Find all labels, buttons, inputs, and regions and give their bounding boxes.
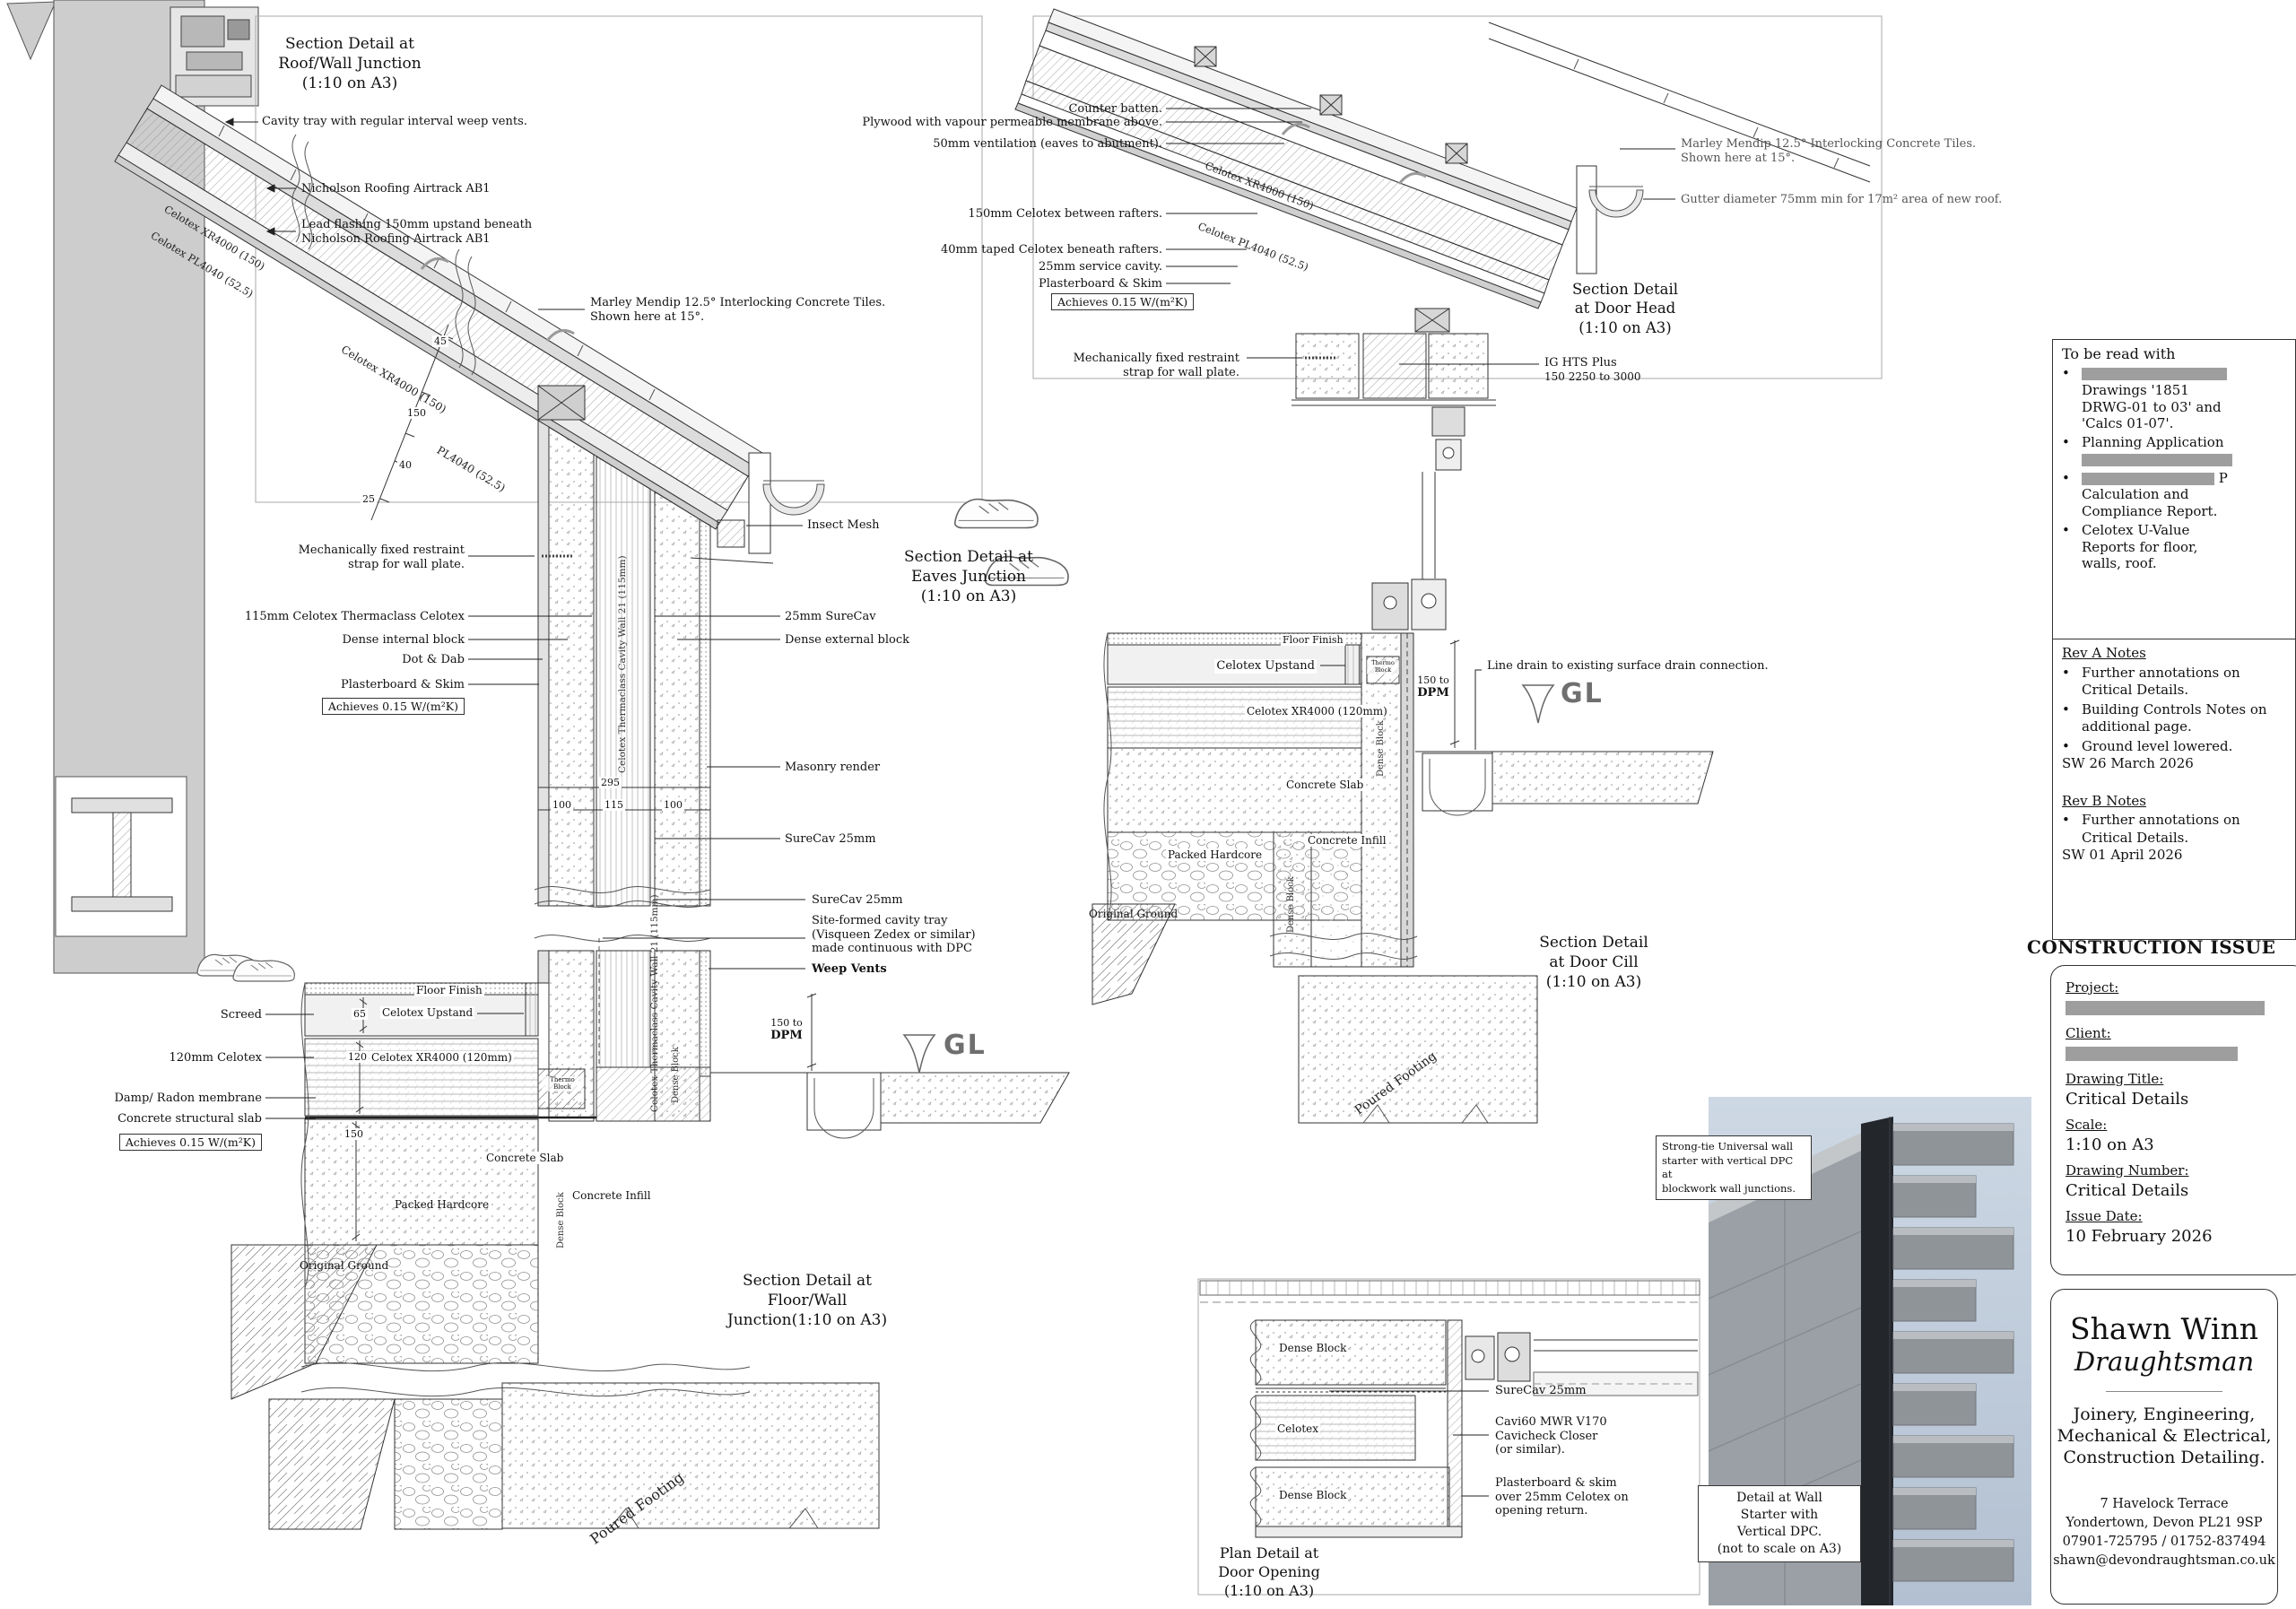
label-line: Shown here at 15°. [590, 310, 885, 325]
label-line: DPM [764, 1029, 809, 1043]
label-line: Thermo [542, 1076, 583, 1083]
rev-text: Further annotations on Critical Details. [2082, 665, 2286, 700]
brand-address: 7 Havelock Terrace Yondertown, Devon PL2… [2051, 1495, 2277, 1570]
title-floor-wall-junction: Section Detail at Floor/Wall Junction(1:… [717, 1271, 897, 1330]
title-line: Section Detail at [717, 1271, 897, 1291]
dim-25: 25 [361, 493, 377, 505]
label-line: P [2219, 470, 2228, 486]
label-dense-block-plan-a: Dense Block [1277, 1342, 1348, 1354]
client-label: Client: [2066, 1025, 2292, 1041]
title-line: (1:10 on A3) [874, 587, 1063, 606]
label-concrete-infill-cill: Concrete Infill [1306, 834, 1388, 847]
rev-b-sign: SW 01 April 2026 [2062, 847, 2286, 865]
title-eaves-junction: Section Detail at Eaves Junction (1:10 o… [874, 547, 1063, 606]
label-line: (Visqueen Zedex or similar) [812, 928, 976, 943]
label-thermo-block-cill: Thermo Block [1367, 660, 1399, 674]
bullet-icon: • [2062, 365, 2074, 432]
dim-150-slab: 150 [343, 1128, 365, 1140]
title-line: Section Detail [1528, 933, 1659, 952]
label-line: Compliance Report. [2082, 503, 2217, 519]
label-concrete-structural-slab: Concrete structural slab [117, 1112, 262, 1126]
label-line: DPM [1413, 686, 1453, 700]
label-celotex-upstand: Celotex Upstand [380, 1006, 474, 1019]
brand-role: Draughtsman [2051, 1346, 2277, 1377]
label-floor-finish-cill: Floor Finish [1281, 634, 1345, 646]
label-line: Cavi60 MWR V170 [1495, 1415, 1607, 1430]
gl-marker-icon [1523, 685, 1553, 723]
label-weep-vents: Weep Vents [812, 962, 887, 977]
caption-line: Starter with [1704, 1507, 1855, 1524]
title-line: Junction(1:10 on A3) [717, 1310, 897, 1330]
label-line: Construction Detailing. [2051, 1448, 2277, 1469]
bullet-icon: • [2062, 738, 2074, 756]
label-concrete-infill: Concrete Infill [570, 1189, 653, 1202]
label-line: Yondertown, Devon PL21 9SP [2051, 1514, 2277, 1533]
label-lead-flashing: Lead flashing 150mm upstand beneath Nich… [301, 218, 532, 246]
label-surecav-floor: SureCav 25mm [812, 893, 903, 908]
label-restraint-strap: Mechanically fixed restraint strap for w… [299, 544, 465, 571]
label-cavity-wall-vertical: Celotex Thermaclass Cavity Wall 21 (115m… [617, 555, 628, 773]
label-celotex-xr4000-120: Celotex XR4000 (120mm) [370, 1051, 514, 1064]
label-thermo-block: Thermo Block [542, 1076, 583, 1092]
drawing-number-label: Drawing Number: [2066, 1162, 2292, 1178]
title-block-info: Project: Client: Drawing Title: Critical… [2050, 965, 2296, 1275]
construction-issue-heading: CONSTRUCTION ISSUE [2027, 936, 2296, 958]
title-block-brand: Shawn Winn Draughtsman Joinery, Engineer… [2050, 1289, 2278, 1605]
revision-notes-box: Rev A Notes •Further annotations on Crit… [2052, 639, 2296, 940]
label-plasterboard-skim-head: Plasterboard & Skim [1039, 277, 1162, 291]
label-line: blockwork wall junctions. [1662, 1182, 1805, 1196]
u-value-box-floor: Achieves 0.15 W/(m²K) [119, 1134, 262, 1151]
dim-150: 150 [405, 407, 428, 419]
divider [2106, 1391, 2222, 1392]
redacted-text [2066, 1047, 2238, 1061]
gl-marker-icon [904, 1035, 935, 1073]
title-line: (1:10 on A3) [1568, 318, 1683, 337]
gl-text-cill: GL [1561, 678, 1604, 709]
to-be-read-with-box: To be read with • Drawings '1851 DRWG-01… [2052, 339, 2296, 640]
title-line: Plan Detail at [1209, 1544, 1329, 1563]
label-celotex-plan: Celotex [1275, 1422, 1320, 1435]
title-line: Floor/Wall [717, 1291, 897, 1310]
rev-b-title: Rev B Notes [2062, 793, 2286, 811]
label-line: Site-formed cavity tray [812, 914, 976, 928]
label-line: Lead flashing 150mm upstand beneath [301, 218, 532, 232]
bullet-icon: • [2062, 701, 2074, 736]
scale-value: 1:10 on A3 [2066, 1135, 2292, 1154]
label-strong-tie: Strong-tie Universal wall starter with v… [1656, 1135, 1812, 1200]
bullet-icon: • [2062, 812, 2074, 847]
read-with-title: To be read with [2062, 345, 2286, 363]
rev-item: •Further annotations on Critical Details… [2062, 812, 2286, 847]
title-line: Eaves Junction [874, 567, 1063, 587]
redacted-text [2066, 1001, 2265, 1015]
redacted-text [2082, 473, 2214, 485]
label-thermaclass: 115mm Celotex Thermaclass Celotex [245, 610, 465, 624]
label-line: Mechanically fixed restraint [1074, 352, 1239, 366]
label-line: IG HTS Plus [1544, 356, 1640, 370]
label-line: strap for wall plate. [299, 558, 465, 572]
label-120mm-celotex: 120mm Celotex [170, 1051, 262, 1065]
spacer [2062, 773, 2286, 793]
label-line: Mechanically fixed restraint [299, 544, 465, 558]
rev-a-title: Rev A Notes [2062, 645, 2286, 663]
bullet-icon: • [2062, 522, 2074, 572]
label-line: Drawings '1851 [2082, 382, 2189, 398]
label-line: shawn@devondraughtsman.co.uk [2051, 1552, 2277, 1570]
label-line: 150 to [764, 1017, 809, 1029]
label-line: Block [1367, 667, 1399, 674]
label-line: 150 to [1413, 674, 1453, 686]
title-line: (1:10 on A3) [1209, 1582, 1329, 1601]
label-concrete-slab-cill: Concrete Slab [1284, 778, 1365, 791]
label-packed-hardcore-cill: Packed Hardcore [1166, 848, 1264, 861]
brand-name: Shawn Winn [2051, 1311, 2277, 1346]
read-with-text: Drawings '1851 DRWG-01 to 03' and 'Calcs… [2082, 365, 2227, 432]
issue-date-label: Issue Date: [2066, 1208, 2292, 1224]
label-line: over 25mm Celotex on [1495, 1491, 1629, 1505]
read-with-item: • Planning Application [2062, 434, 2286, 468]
footprints-icon [197, 954, 294, 981]
label-packed-hardcore: Packed Hardcore [395, 1198, 489, 1211]
label-insect-mesh: Insect Mesh [807, 518, 880, 533]
label-line: 07901-725795 / 01752-837494 [2051, 1533, 2277, 1552]
label-concrete-slab: Concrete Slab [484, 1152, 565, 1164]
label-masonry-render: Masonry render [785, 761, 880, 775]
dim-120: 120 [346, 1051, 369, 1063]
label-line: Shown here at 15°. [1681, 152, 1976, 166]
read-with-item: • P Calculation and Compliance Report. [2062, 470, 2286, 520]
client-value [2066, 1044, 2292, 1063]
title-line: (1:10 on A3) [269, 74, 430, 93]
label-40mm-celotex: 40mm taped Celotex beneath rafters. [941, 243, 1162, 257]
drawing-title-label: Drawing Title: [2066, 1071, 2292, 1087]
label-line: 150 2250 to 3000 [1544, 370, 1640, 383]
label-surecav-plan: SureCav 25mm [1495, 1384, 1587, 1398]
label-service-cavity: 25mm service cavity. [1039, 260, 1162, 274]
title-plan-door-opening: Plan Detail at Door Opening (1:10 on A3) [1209, 1544, 1329, 1600]
label-line: 7 Havelock Terrace [2051, 1495, 2277, 1514]
label-line: Joinery, Engineering, [2051, 1405, 2277, 1426]
rev-item: •Building Controls Notes on additional p… [2062, 701, 2286, 736]
gutter-icon [763, 481, 824, 515]
label-celotex-upstand-cill: Celotex Upstand [1214, 659, 1317, 674]
dim-45: 45 [432, 335, 448, 347]
label-line: strap for wall plate. [1074, 366, 1239, 380]
read-with-item: • Drawings '1851 DRWG-01 to 03' and 'Cal… [2062, 365, 2286, 432]
label-line: Marley Mendip 12.5° Interlocking Concret… [1681, 137, 1976, 152]
label-dense-block-vert-outer: Dense Block [671, 1047, 681, 1103]
rev-item: •Further annotations on Critical Details… [2062, 665, 2286, 700]
dim-115: 115 [603, 799, 625, 811]
read-with-text: P Calculation and Compliance Report. [2082, 470, 2228, 520]
dim-40: 40 [397, 459, 413, 471]
label-counter-batten: Counter batten. [1068, 102, 1162, 117]
label-50mm-ventilation: 50mm ventilation (eaves to abutment). [933, 137, 1162, 152]
label-line: starter with vertical DPC at [1662, 1154, 1805, 1182]
dim-100-inner: 100 [551, 799, 573, 811]
label-line: Plasterboard & skim [1495, 1476, 1629, 1491]
rev-text: Building Controls Notes on additional pa… [2082, 701, 2286, 736]
read-with-text: Planning Application [2082, 434, 2232, 468]
drawing-sheet: Section Detail at Roof/Wall Junction (1:… [0, 0, 2296, 1609]
label-line: Calculation and [2082, 486, 2189, 502]
label-line: Marley Mendip 12.5° Interlocking Concret… [590, 296, 885, 310]
label-line-drain: Line drain to existing surface drain con… [1487, 659, 1769, 674]
label-marley-tiles-head: Marley Mendip 12.5° Interlocking Concret… [1681, 137, 1976, 165]
rev-item: •Ground level lowered. [2062, 738, 2286, 756]
label-celotex-xr4000-cill: Celotex XR4000 (120mm) [1245, 705, 1389, 718]
rev-a-sign: SW 26 March 2026 [2062, 755, 2286, 773]
gl-text: GL [944, 1030, 987, 1061]
gutter-icon [1589, 187, 1643, 217]
title-line: (1:10 on A3) [1528, 972, 1659, 992]
label-plywood-membrane: Plywood with vapour permeable membrane a… [862, 116, 1162, 130]
title-roof-wall-junction: Section Detail at Roof/Wall Junction (1:… [269, 34, 430, 93]
dim-150-dpm-cill: 150 to DPM [1413, 674, 1453, 700]
read-with-text: Celotex U-Value Reports for floor, walls… [2082, 522, 2197, 572]
read-with-item: • Celotex U-Value Reports for floor, wal… [2062, 522, 2286, 572]
label-plasterboard-skim: Plasterboard & Skim [341, 678, 465, 692]
dim-100-outer: 100 [662, 799, 684, 811]
label-line: Mechanical & Electrical, [2051, 1426, 2277, 1448]
project-label: Project: [2066, 979, 2292, 996]
scale-label: Scale: [2066, 1117, 2292, 1133]
label-dense-block-outer-cill: Dense Block [1376, 720, 1386, 777]
label-line: DRWG-01 to 03' and [2082, 399, 2222, 415]
label-airtrack: Nicholson Roofing Airtrack AB1 [301, 182, 491, 196]
caption-line: Detail at Wall [1704, 1490, 1855, 1507]
label-line: 'Calcs 01-07'. [2082, 415, 2173, 431]
rev-text: Ground level lowered. [2082, 738, 2232, 756]
brand-services: Joinery, Engineering, Mechanical & Elect… [2051, 1405, 2277, 1468]
title-line: Roof/Wall Junction [269, 54, 430, 74]
label-line: (or similar). [1495, 1443, 1607, 1457]
label-cavity-wall-vertical-floor: Celotex Thermaclass Cavity Wall 21 (115m… [649, 894, 660, 1112]
label-original-ground-cill: Original Ground [1089, 908, 1178, 920]
label-damp-radon-membrane: Damp/ Radon membrane [114, 1092, 262, 1106]
label-dense-external-block: Dense external block [785, 633, 909, 648]
label-surecav-25mm: SureCav 25mm [785, 832, 876, 847]
label-floor-finish: Floor Finish [414, 984, 484, 996]
bullet-icon: • [2062, 665, 2074, 700]
label-dense-block-plan-b: Dense Block [1277, 1489, 1348, 1501]
title-line: Section Detail at [269, 34, 430, 54]
label-25mm-surecav: 25mm SureCav [785, 610, 876, 624]
project-value [2066, 998, 2292, 1017]
title-line: Door Opening [1209, 1563, 1329, 1582]
label-dense-block-inner-cill: Dense Block [1286, 876, 1296, 933]
label-cavity-tray-site: Site-formed cavity tray (Visqueen Zedex … [812, 914, 976, 956]
redacted-text [2082, 454, 2232, 466]
label-150mm-celotex-rafters: 150mm Celotex between rafters. [968, 207, 1162, 222]
label-line: Planning Application [2082, 434, 2223, 450]
title-door-head: Section Detail at Door Head (1:10 on A3) [1568, 280, 1683, 337]
title-door-cill: Section Detail at Door Cill (1:10 on A3) [1528, 933, 1659, 992]
label-line: Nicholson Roofing Airtrack AB1 [301, 232, 532, 247]
label-screed: Screed [221, 1008, 262, 1022]
label-line: Cavicheck Closer [1495, 1430, 1607, 1444]
label-original-ground: Original Ground [300, 1259, 388, 1272]
label-cavity-tray: Cavity tray with regular interval weep v… [262, 115, 527, 129]
label-plasterboard-return: Plasterboard & skim over 25mm Celotex on… [1495, 1476, 1629, 1518]
label-line: made continuous with DPC [812, 942, 976, 956]
label-line: Strong-tie Universal wall [1662, 1140, 1805, 1154]
drawing-number-value: Critical Details [2066, 1181, 2292, 1200]
label-line: Reports for floor, [2082, 539, 2197, 555]
issue-date-value: 10 February 2026 [2066, 1227, 2292, 1246]
bullet-icon: • [2062, 434, 2074, 468]
label-cavicheck: Cavi60 MWR V170 Cavicheck Closer (or sim… [1495, 1415, 1607, 1457]
u-value-box-head: Achieves 0.15 W/(m²K) [1051, 293, 1194, 310]
label-marley-tiles: Marley Mendip 12.5° Interlocking Concret… [588, 296, 887, 324]
label-dense-block-vert: Dense Block [556, 1192, 566, 1248]
label-dense-internal-block: Dense internal block [342, 633, 465, 648]
caption-line: Vertical DPC. [1704, 1524, 1855, 1541]
caption-wall-starter: Detail at Wall Starter with Vertical DPC… [1698, 1485, 1861, 1562]
redacted-text [2082, 368, 2227, 380]
title-line: at Door Cill [1528, 952, 1659, 972]
dim-overall-295: 295 [599, 777, 622, 788]
roof-slope-drawing [115, 85, 824, 563]
u-value-box-eaves: Achieves 0.15 W/(m²K) [322, 698, 465, 715]
rev-text: Further annotations on Critical Details. [2082, 812, 2286, 847]
label-line: walls, roof. [2082, 555, 2157, 571]
label-restraint-strap-head: Mechanically fixed restraint strap for w… [1074, 352, 1239, 379]
drawing-title-value: Critical Details [2066, 1090, 2292, 1109]
label-line: Block [542, 1083, 583, 1091]
dim-65: 65 [352, 1008, 368, 1020]
label-ig-lintel: IG HTS Plus 150 2250 to 3000 [1544, 356, 1640, 383]
floor-wall-junction-drawing [197, 935, 1069, 1529]
label-dot-and-dab: Dot & Dab [402, 653, 465, 667]
label-line: Celotex U-Value [2082, 522, 2189, 538]
title-line: at Door Head [1568, 299, 1683, 317]
dim-150-dpm: 150 to DPM [764, 1017, 809, 1043]
label-line: opening return. [1495, 1504, 1629, 1518]
bullet-icon: • [2062, 470, 2074, 520]
title-line: Section Detail at [874, 547, 1063, 567]
title-line: Section Detail [1568, 280, 1683, 299]
door-cill-drawing [955, 500, 1713, 1123]
caption-line: (not to scale on A3) [1704, 1541, 1855, 1558]
label-gutter-diameter: Gutter diameter 75mm min for 17m² area o… [1681, 193, 2002, 207]
